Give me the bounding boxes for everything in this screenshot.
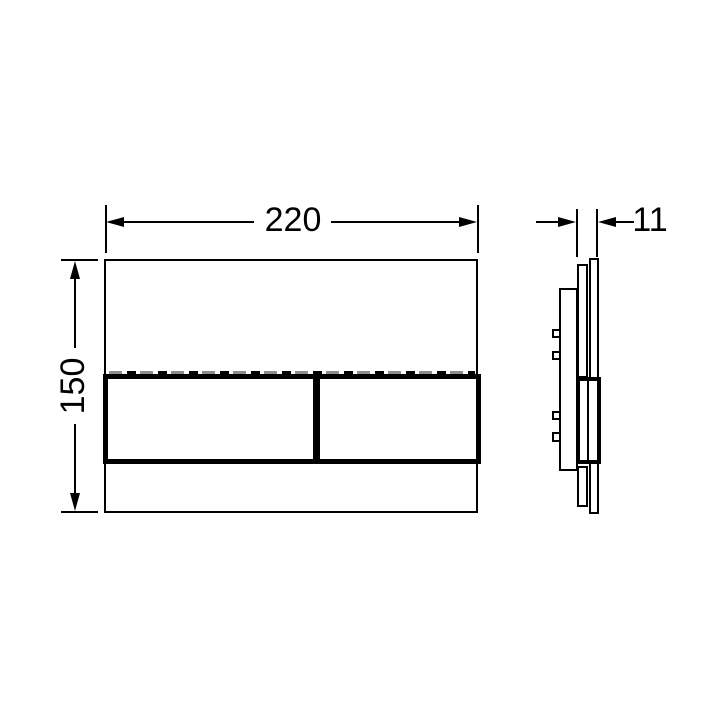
height-dim-line-bottom (74, 424, 76, 496)
height-dim-line-top (74, 276, 76, 348)
mounting-clip (552, 351, 561, 360)
flush-button-right (320, 379, 476, 459)
plate-body-lower (577, 466, 588, 507)
width-dim-line-right (331, 221, 461, 223)
mounting-clip (552, 411, 561, 420)
depth-arrow-right-icon (558, 217, 576, 227)
hidden-edge-dashes (109, 371, 475, 374)
depth-extension-line-left (576, 209, 578, 257)
button-divider (313, 379, 320, 459)
width-extension-line-right (477, 205, 479, 253)
height-dim-label: 150 (55, 347, 91, 425)
flush-button-left (108, 379, 313, 459)
width-dim-label: 220 (254, 202, 332, 238)
depth-arrow-left-icon (598, 217, 616, 227)
mounting-clip (552, 432, 561, 442)
width-dim-line-left (120, 221, 254, 223)
width-arrow-right-icon (459, 217, 477, 227)
width-extension-line-left (105, 205, 107, 253)
mounting-clip (552, 329, 561, 338)
depth-dim-label: 11 (628, 202, 672, 238)
button-side-inner-line (587, 381, 589, 460)
depth-dim-line-left (536, 221, 560, 223)
height-tick-bottom (61, 511, 98, 513)
plate-body-upper (577, 264, 588, 378)
drawing-canvas: 220 150 11 (0, 0, 720, 720)
